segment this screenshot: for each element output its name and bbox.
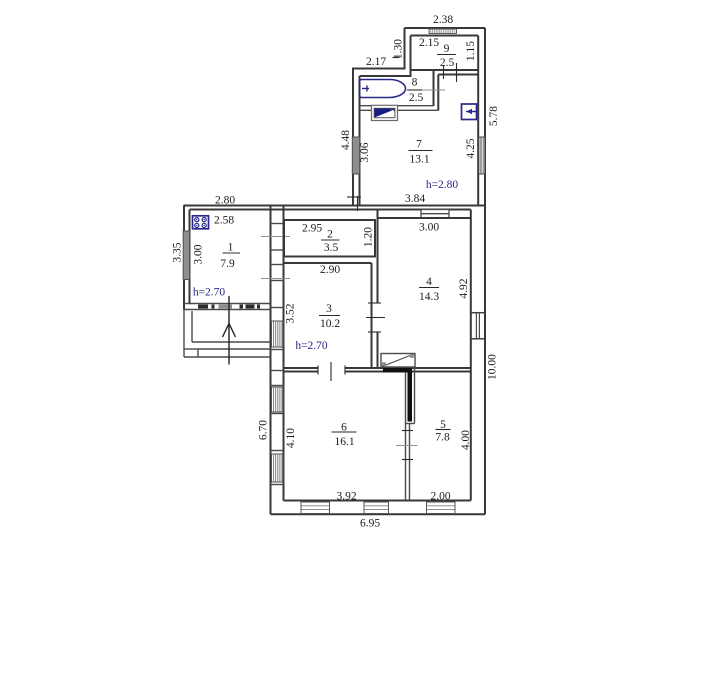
svg-text:3.00: 3.00: [193, 244, 205, 264]
svg-text:3.92: 3.92: [336, 491, 356, 503]
svg-text:1.30: 1.30: [393, 39, 405, 59]
svg-text:10.00: 10.00: [487, 354, 499, 380]
svg-text:2.90: 2.90: [320, 264, 340, 276]
svg-text:6.95: 6.95: [360, 518, 380, 530]
svg-text:4.10: 4.10: [285, 428, 297, 448]
svg-text:2.95: 2.95: [302, 223, 322, 235]
svg-text:1.20: 1.20: [362, 227, 374, 247]
svg-text:4.00: 4.00: [460, 430, 472, 450]
svg-text:2.38: 2.38: [433, 14, 453, 26]
svg-text:14.3: 14.3: [419, 291, 439, 303]
svg-text:2: 2: [327, 229, 333, 241]
svg-text:1.15: 1.15: [465, 41, 477, 61]
svg-text:7: 7: [416, 139, 422, 151]
svg-text:3.35: 3.35: [172, 242, 184, 262]
svg-text:3.5: 3.5: [324, 242, 339, 254]
svg-text:3.52: 3.52: [284, 303, 296, 323]
svg-text:h=2.80: h=2.80: [426, 179, 459, 191]
svg-text:2.5: 2.5: [409, 92, 424, 104]
svg-text:4.25: 4.25: [465, 138, 477, 158]
svg-text:2.58: 2.58: [214, 215, 234, 227]
svg-text:7.8: 7.8: [435, 432, 450, 444]
svg-text:h=2.70: h=2.70: [295, 340, 328, 352]
svg-text:2.17: 2.17: [366, 56, 386, 68]
svg-text:3: 3: [326, 303, 332, 315]
svg-text:2.80: 2.80: [215, 195, 235, 207]
svg-text:3.00: 3.00: [419, 222, 439, 234]
svg-text:3.06: 3.06: [359, 142, 371, 162]
svg-text:6.70: 6.70: [257, 420, 269, 440]
svg-text:2.00: 2.00: [430, 491, 450, 503]
svg-text:4.92: 4.92: [458, 278, 470, 298]
svg-text:16.1: 16.1: [334, 436, 354, 448]
svg-text:3.84: 3.84: [405, 193, 425, 205]
svg-text:4.48: 4.48: [340, 130, 352, 150]
svg-text:8: 8: [412, 77, 418, 89]
svg-text:9: 9: [444, 43, 450, 55]
svg-text:4: 4: [426, 276, 432, 288]
svg-text:2.5: 2.5: [440, 57, 455, 69]
svg-text:5.78: 5.78: [488, 106, 500, 126]
svg-text:7.9: 7.9: [220, 258, 235, 270]
svg-text:2.15: 2.15: [419, 37, 439, 49]
svg-text:10.2: 10.2: [320, 318, 340, 330]
svg-text:1: 1: [228, 242, 234, 254]
svg-text:13.1: 13.1: [409, 154, 429, 166]
svg-text:h=2.70: h=2.70: [193, 287, 226, 299]
